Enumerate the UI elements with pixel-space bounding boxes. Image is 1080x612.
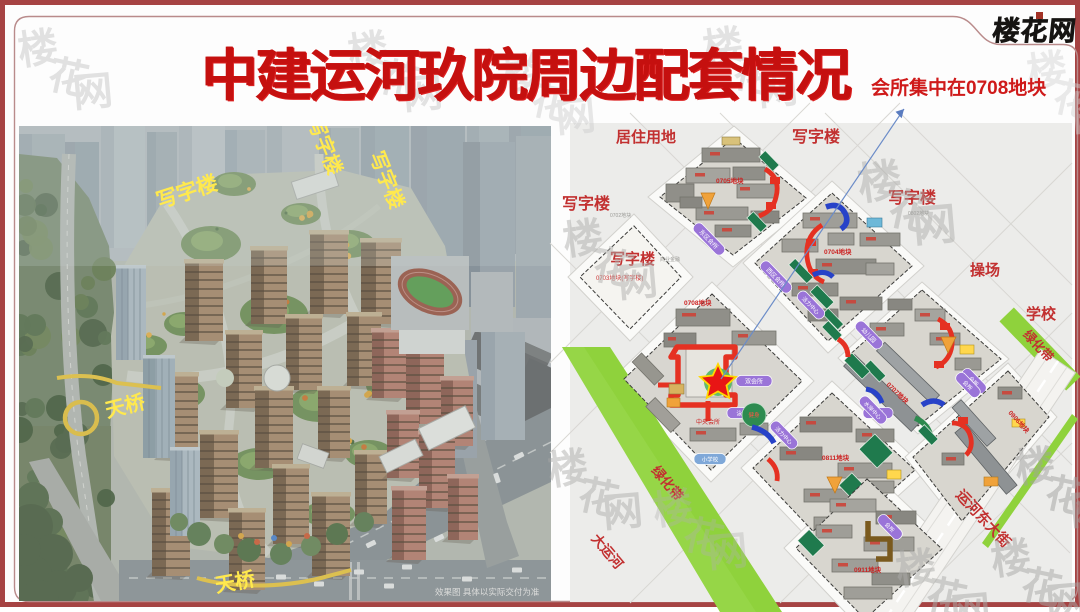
svg-text:网: 网 [71,68,115,116]
svg-text:网: 网 [1068,486,1080,534]
svg-text:网: 网 [1070,92,1080,140]
svg-text:网: 网 [616,258,660,306]
svg-text:网: 网 [949,588,993,612]
svg-text:网: 网 [601,488,645,536]
svg-text:网: 网 [911,199,959,252]
svg-text:网: 网 [706,528,750,576]
